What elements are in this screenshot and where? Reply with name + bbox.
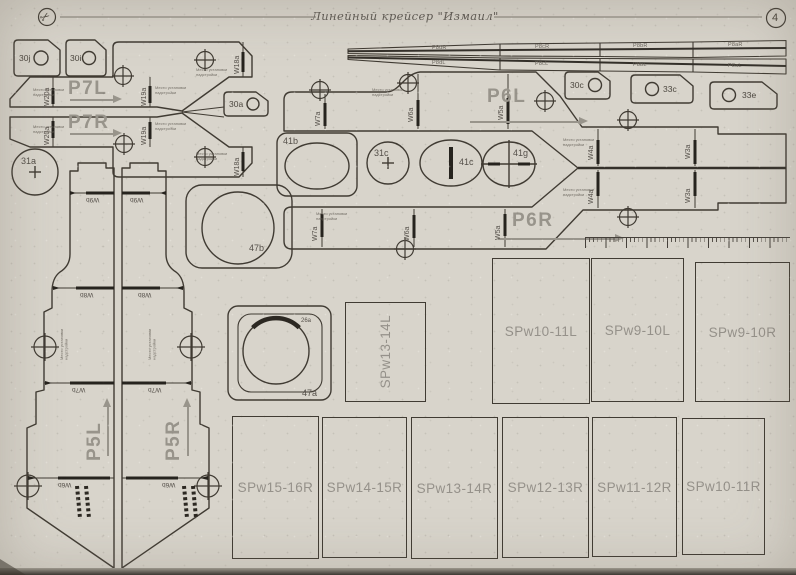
part-label-41c: 41c: [459, 157, 474, 167]
part-label-47b: 47b: [249, 243, 264, 253]
mark-w7b-p5l: W7b: [72, 386, 85, 393]
placement-note: Место установкинадстройки: [316, 212, 347, 221]
part-label-41g: 41g: [513, 148, 528, 158]
part-label-30a: 30a: [229, 99, 243, 109]
part-47a-outline: [228, 306, 331, 400]
part-label-30i: 30i: [70, 53, 81, 63]
part-label-30c: 30c: [570, 80, 584, 90]
mark-w6a-p6r: W6a: [404, 215, 411, 241]
panel-label: SPw9-10R: [709, 325, 777, 340]
mark-w6b-p5l: W6b: [58, 481, 71, 488]
p6l-direction-arrow: [470, 121, 580, 123]
part-41g-outline: [481, 140, 537, 188]
mark-w5a-p6l: W5a: [498, 94, 505, 120]
part-label-p7r: P7R: [68, 112, 109, 134]
mark-w18a-p7l: W18a: [234, 46, 241, 74]
panel-spw10-11l: SPw10-11L: [492, 258, 590, 404]
part-label-p6r: P6R: [512, 210, 553, 232]
panel-label: SPw14-15R: [327, 480, 403, 495]
part-label-30j: 30j: [19, 53, 30, 63]
panel-label: SPw12-13R: [508, 480, 584, 495]
mark-w19a-p7l: W19a: [141, 80, 148, 106]
mark-w6a-p6l: W6a: [408, 96, 415, 122]
page-title: Линейный крейсер "Измаил": [310, 9, 500, 23]
scan-edge-shadow: [0, 568, 796, 575]
mark-w7a-p6l: W7a: [315, 100, 322, 126]
panel-label: SPw11-12R: [597, 480, 672, 495]
placement-note: Место установкинадстройки: [372, 88, 403, 97]
panel-spw9-10l: SPw9-10L: [591, 258, 684, 402]
page-number: 4: [772, 12, 778, 24]
placement-note: Место установкинадстройки: [196, 68, 227, 77]
part-label-p6l: P6L: [487, 86, 526, 108]
part-47b-outline: [186, 185, 292, 268]
placement-note: Место установкинадстройки: [155, 86, 186, 95]
mark-w9b-p5l: W9b: [86, 196, 99, 203]
p7-neck: [182, 107, 224, 117]
mark-w5a-p6r: W5a: [495, 214, 502, 240]
part-label-p5l: P5L: [84, 405, 106, 461]
mark-w3a-lower: W3a: [685, 177, 692, 203]
tower-p5l-outline: [27, 163, 114, 568]
part-label-26a: 26a: [301, 318, 311, 324]
p5r-direction-arrow: [187, 406, 189, 456]
panel-label: SPw10-11L: [505, 324, 577, 339]
placement-note: Место установкинадстройки: [563, 138, 594, 147]
p7r-direction-arrow: [70, 133, 114, 135]
tab-33c-outline: [631, 75, 693, 103]
placement-note: Место установкинадстройки: [33, 88, 64, 97]
barrel-label-p8ar: P8aR: [728, 42, 743, 48]
panel-spw9-10r: SPw9-10R: [695, 262, 790, 402]
mark-w9b-p5r: W9b: [130, 196, 143, 203]
panel-spw15-16r: SPw15-16R: [232, 416, 319, 559]
part-label-31a: 31a: [21, 156, 36, 166]
scale-ruler: [585, 237, 790, 250]
model-sheet-page: ✂ Линейный крейсер "Измаил" 4 30j 30i 30…: [0, 0, 796, 575]
mark-w19a-p7r: W19a: [141, 119, 148, 145]
mark-w7b-p5r: W7b: [148, 386, 161, 393]
panel-spw11-12r: SPw11-12R: [592, 417, 677, 557]
placement-note: Место установкинадстройки: [155, 122, 186, 131]
placement-note: Место установкинадстройки: [33, 125, 64, 134]
panel-spw10-11r: SPw10-11R: [682, 418, 765, 555]
placement-note: Место установкинадстройки: [60, 312, 69, 360]
placement-note: Место установкинадстройки: [148, 312, 157, 360]
scan-corner-shadow: [0, 559, 26, 575]
panel-spw12-13r: SPw12-13R: [502, 417, 589, 558]
panel-label: SPw15-16R: [238, 480, 314, 495]
part-label-41b: 41b: [283, 136, 298, 146]
barrel-label-p8dr: P8dR: [432, 45, 447, 51]
panel-spw13-14r: SPw13-14R: [411, 417, 498, 559]
barrel-label-p8cr: P8cR: [535, 44, 549, 50]
p5l-direction-arrow: [107, 406, 109, 456]
panel-label: SPw10-11R: [686, 479, 761, 494]
tower-dashed-bars: [77, 486, 196, 518]
panel-spw13-14l: SPw13-14L: [345, 302, 426, 402]
mark-w18a-p7r: W18a: [234, 150, 241, 176]
part-label-p5r: P5R: [163, 405, 185, 461]
placement-note: Место установкинадстройки: [563, 188, 594, 197]
barrel-label-p8dl: P8dL: [432, 60, 446, 66]
mark-w3a-upper: W3a: [685, 133, 692, 159]
mark-w8b-p5r: W8b: [138, 291, 151, 298]
mark-w6b-p5r: W6b: [162, 481, 175, 488]
placement-note: Место установкинадстройки: [196, 152, 227, 161]
part-label-31c: 31c: [374, 148, 389, 158]
panel-label: SPw9-10L: [605, 323, 671, 338]
barrel-label-p8br: P8bR: [633, 43, 648, 49]
part-label-33e: 33e: [742, 90, 756, 100]
p7l-direction-arrow: [70, 99, 114, 101]
tower-p5r-outline: [122, 163, 209, 568]
barrel-label-p8bl: P8bL: [633, 62, 647, 68]
panel-label: SPw13-14L: [378, 315, 393, 388]
part-label-47a: 47a: [302, 388, 317, 398]
barrel-label-p8cl: P8cL: [535, 61, 548, 67]
barrel-strips: [348, 41, 786, 75]
part-label-p7l: P7L: [68, 78, 107, 100]
mark-w8b-p5l: W8b: [80, 291, 93, 298]
panel-spw14-15r: SPw14-15R: [322, 417, 407, 558]
barrel-label-p8al: P8aL: [728, 63, 742, 69]
panel-label: SPw13-14R: [417, 481, 493, 496]
part-label-33c: 33c: [663, 84, 677, 94]
